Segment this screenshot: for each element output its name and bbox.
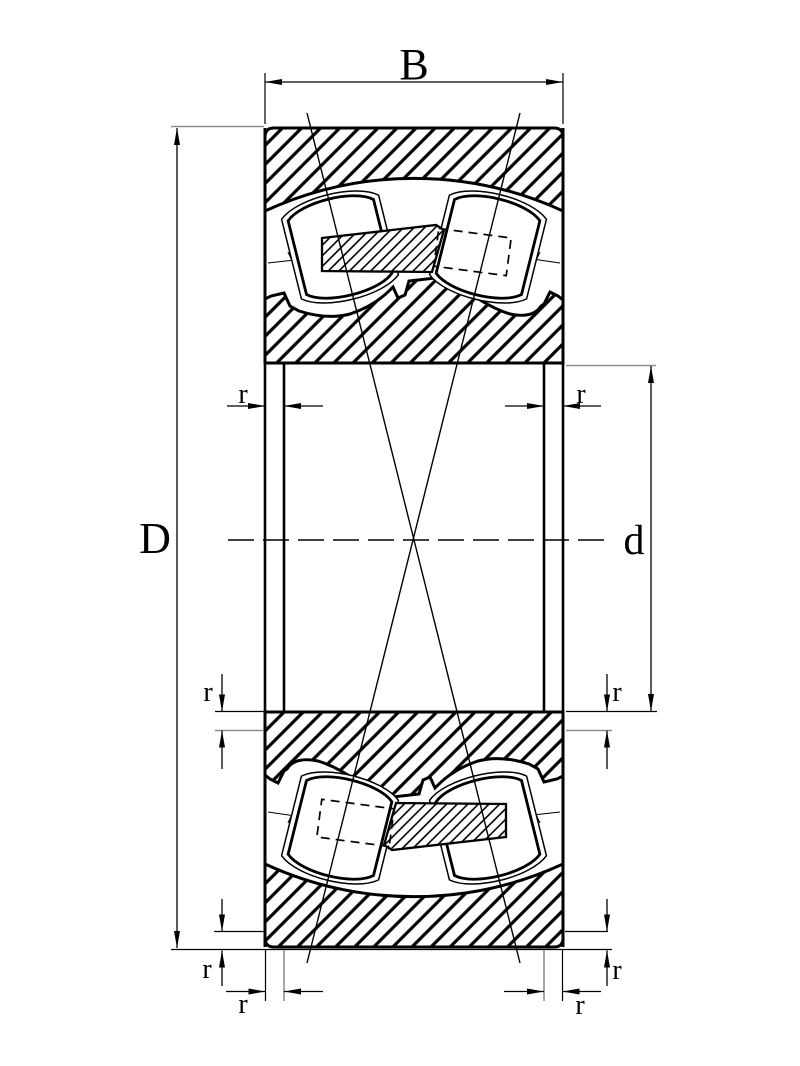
label-chamfer-r-bottom-left-v: r [202, 954, 212, 985]
bearing-technical-drawing: B D d r r r r r r r r [0, 0, 800, 1066]
label-width-B: B [399, 40, 428, 89]
drawing-canvas: B D d r r r r r r r r [0, 0, 800, 1066]
label-chamfer-r-bottom-right-h: r [575, 990, 585, 1021]
upper-assembly [265, 128, 563, 363]
label-bore-diameter-d: d [624, 518, 645, 564]
label-chamfer-r-mid-left: r [203, 677, 213, 708]
label-chamfer-r-bottom-right-v: r [612, 955, 622, 986]
label-chamfer-r-top-right: r [576, 379, 586, 410]
lower-assembly [265, 712, 563, 947]
label-chamfer-r-top-left: r [238, 379, 248, 410]
label-chamfer-r-mid-right: r [612, 677, 622, 708]
label-chamfer-r-bottom-left-h: r [238, 989, 248, 1020]
label-outer-diameter-D: D [139, 514, 171, 563]
